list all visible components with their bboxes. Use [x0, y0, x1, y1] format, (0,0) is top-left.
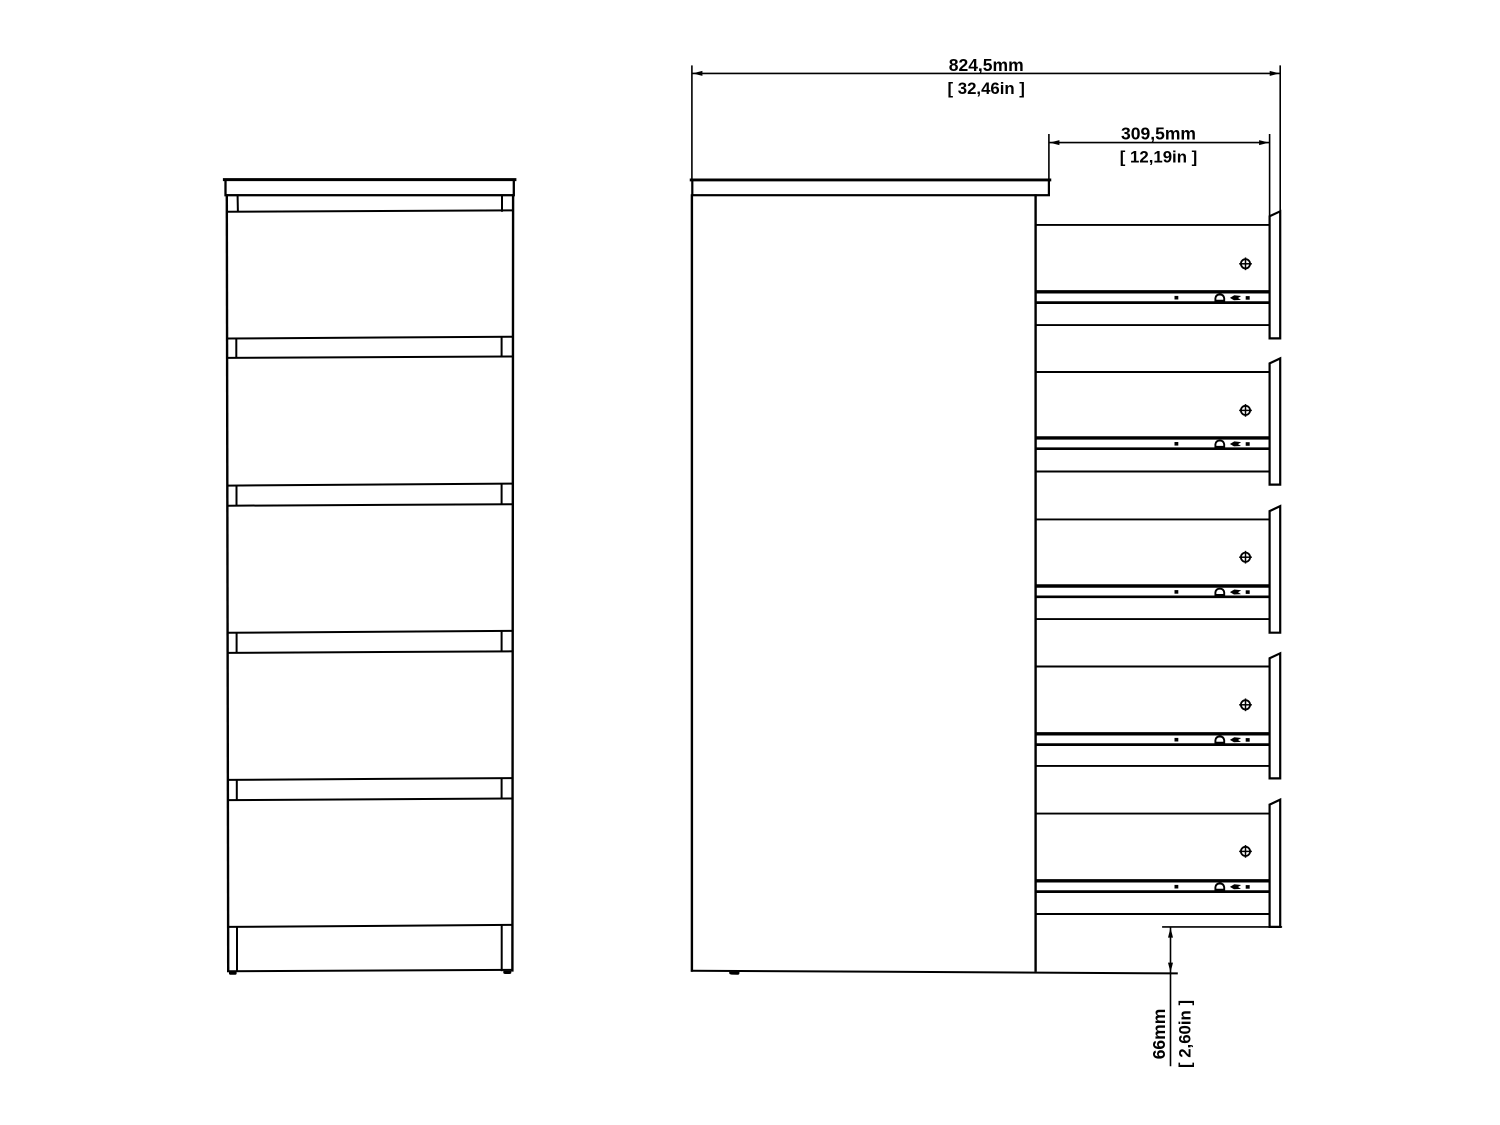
svg-text:[ 32,46in ]: [ 32,46in ] [947, 79, 1024, 98]
svg-text:[ 12,19in ]: [ 12,19in ] [1120, 148, 1197, 167]
svg-text:824,5mm: 824,5mm [949, 55, 1024, 75]
svg-text:309,5mm: 309,5mm [1121, 123, 1196, 143]
svg-text:[ 2,60in ]: [ 2,60in ] [1175, 1000, 1194, 1068]
svg-text:66mm: 66mm [1149, 1009, 1169, 1060]
